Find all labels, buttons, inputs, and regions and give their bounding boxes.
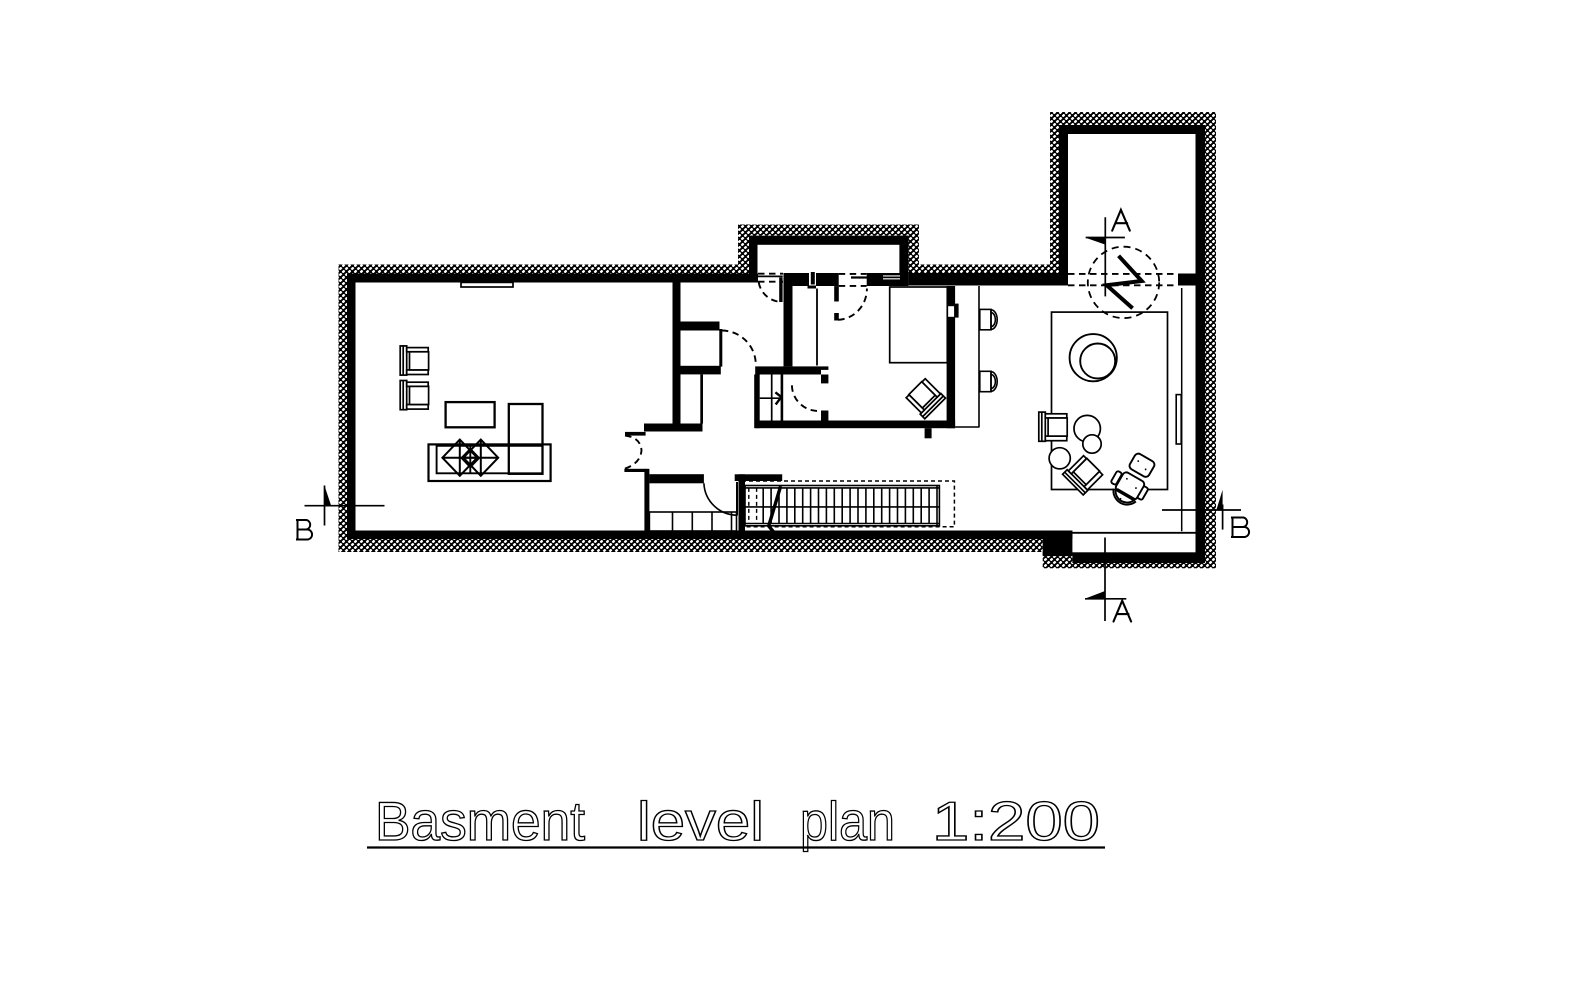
svg-text:plan: plan [800,790,895,852]
svg-text:level: level [637,790,764,852]
svg-text:Basment: Basment [375,790,585,852]
svg-text:1:200: 1:200 [932,790,1100,852]
